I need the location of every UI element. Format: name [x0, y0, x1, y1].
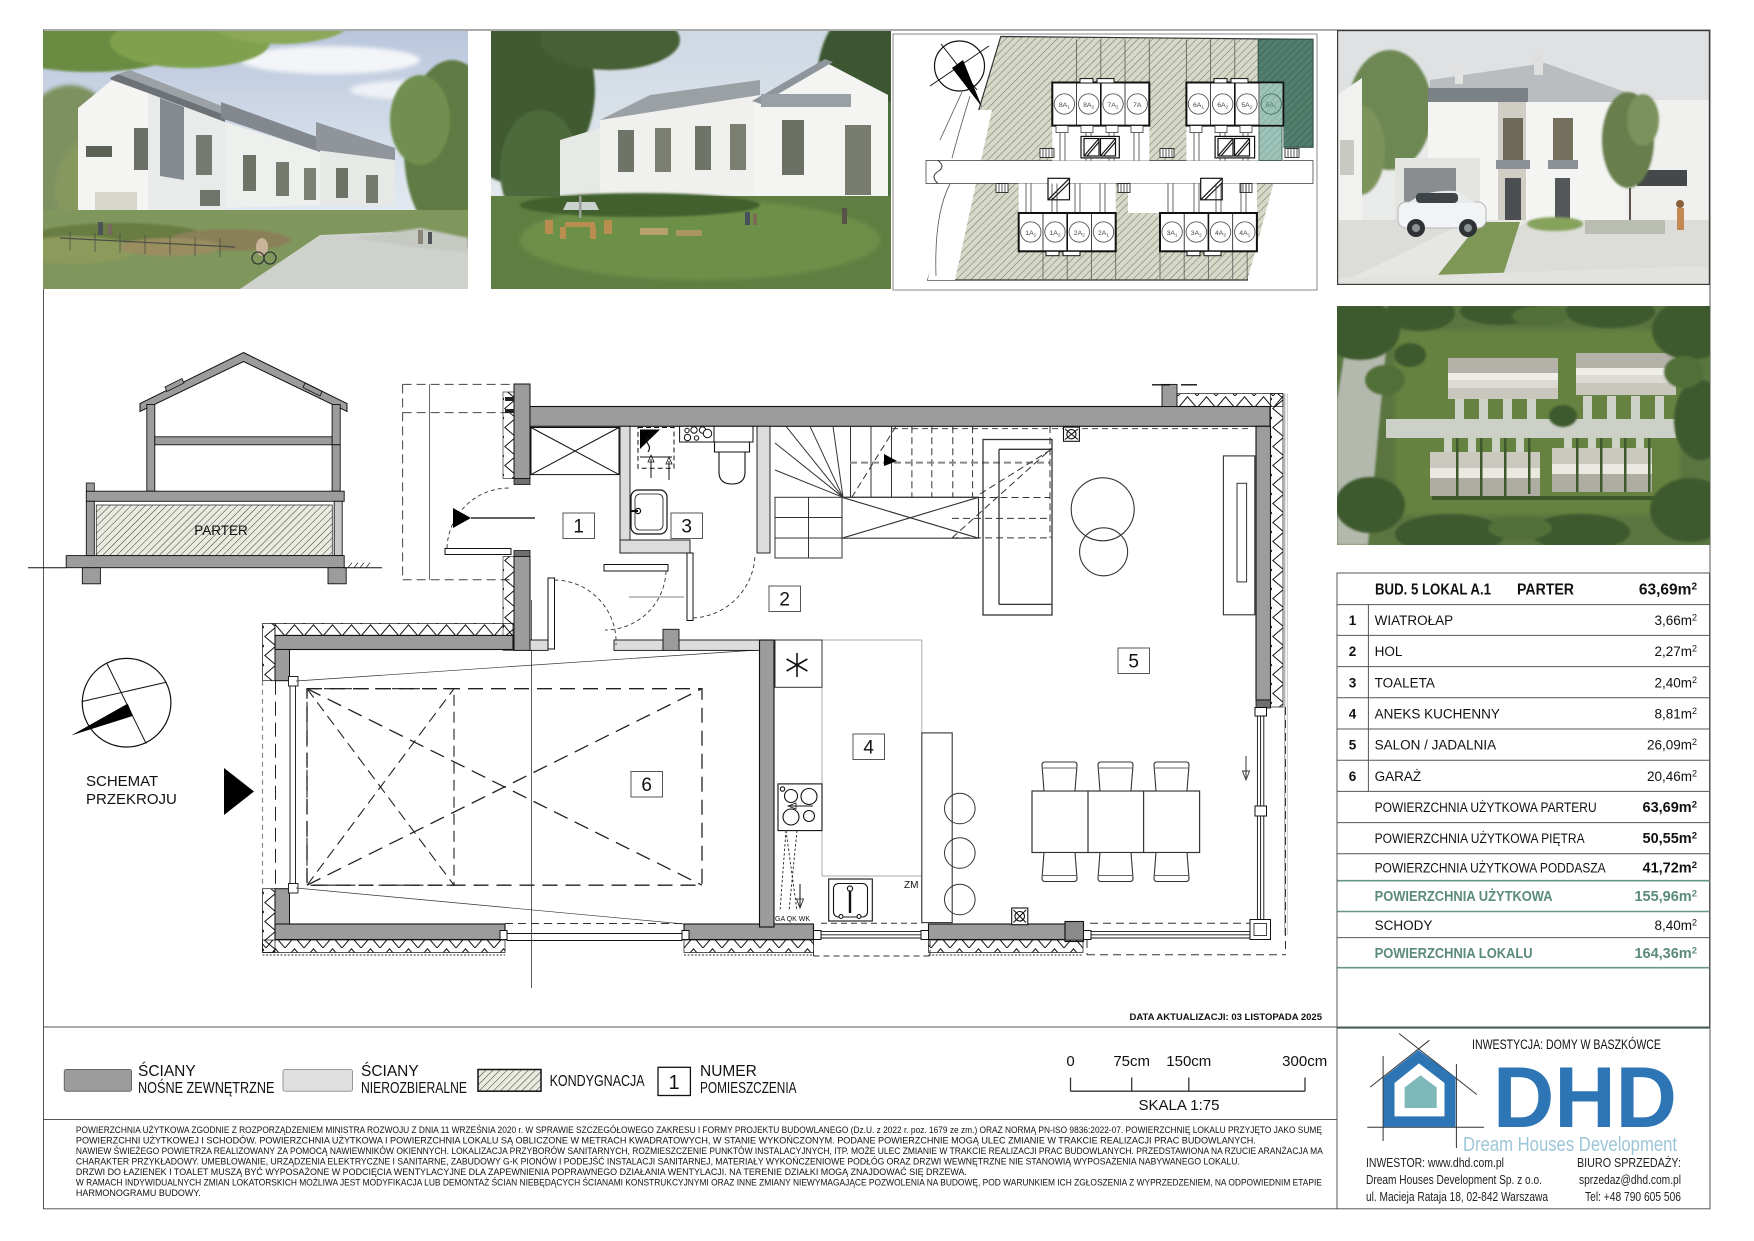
svg-text:W RAMACH INDYWIDUALNYCH ZMIAN: W RAMACH INDYWIDUALNYCH ZMIAN LOKATORSKI…: [76, 1177, 1322, 1188]
svg-text:4: 4: [863, 738, 874, 759]
svg-text:2,27m2: 2,27m2: [1654, 644, 1697, 660]
svg-text:DHD: DHD: [1493, 1050, 1677, 1146]
svg-text:75cm: 75cm: [1113, 1053, 1150, 1070]
svg-text:POWIERZCHNIA UŻYTKOWA PODDASZA: POWIERZCHNIA UŻYTKOWA PODDASZA: [1375, 861, 1606, 876]
svg-text:BUD. 5 LOKAL A.1: BUD. 5 LOKAL A.1: [1375, 582, 1491, 599]
svg-text:8,40m2: 8,40m2: [1654, 917, 1697, 933]
svg-text:HARMONOGRAMU BUDOWY.: HARMONOGRAMU BUDOWY.: [76, 1188, 201, 1198]
svg-text:NOŚNE ZEWNĘTRZNE: NOŚNE ZEWNĘTRZNE: [138, 1079, 275, 1097]
svg-text:300cm: 300cm: [1282, 1053, 1327, 1070]
svg-text:GARAŻ: GARAŻ: [1375, 769, 1422, 784]
svg-text:PARTER: PARTER: [194, 523, 248, 538]
svg-text:63,69m2: 63,69m2: [1643, 800, 1697, 817]
svg-text:50,55m2: 50,55m2: [1643, 831, 1697, 848]
svg-text:1: 1: [1349, 613, 1357, 628]
svg-text:SCHODY: SCHODY: [1375, 918, 1433, 933]
svg-text:POMIESZCZENIA: POMIESZCZENIA: [700, 1080, 797, 1097]
svg-text:63,69m2: 63,69m2: [1639, 582, 1698, 599]
svg-text:150cm: 150cm: [1166, 1053, 1211, 1070]
svg-text:SALON / JADALNIA: SALON / JADALNIA: [1375, 738, 1497, 753]
svg-text:20,46m2: 20,46m2: [1647, 768, 1697, 784]
svg-text:POWIERZCHNIA UŻYTKOWA ZGODNIE: POWIERZCHNIA UŻYTKOWA ZGODNIE Z ROZPORZĄ…: [76, 1124, 1322, 1135]
svg-text:6: 6: [1349, 769, 1357, 784]
svg-text:3: 3: [681, 517, 692, 538]
svg-text:SCHEMAT: SCHEMAT: [86, 773, 158, 790]
svg-text:8,81m2: 8,81m2: [1654, 706, 1697, 722]
svg-text:PARTER: PARTER: [1517, 582, 1574, 599]
svg-text:ANEKS KUCHENNY: ANEKS KUCHENNY: [1375, 707, 1500, 722]
svg-text:NAWIEW ŚWIEŻEGO POWIETRZA REAL: NAWIEW ŚWIEŻEGO POWIETRZA REALIZOWANY ZA…: [76, 1145, 1323, 1156]
svg-text:DATA AKTUALIZACJI: 03 LISTOPAD: DATA AKTUALIZACJI: 03 LISTOPADA 2025: [1130, 1012, 1323, 1023]
svg-text:ŚCIANY: ŚCIANY: [138, 1062, 196, 1080]
svg-text:POWIERZCHNIA UŻYTKOWA PARTERU: POWIERZCHNIA UŻYTKOWA PARTERU: [1375, 800, 1597, 815]
svg-text:Tel: +48 790 605 506: Tel: +48 790 605 506: [1585, 1189, 1681, 1204]
svg-text:2: 2: [779, 590, 790, 611]
svg-text:POWIERZCHNIA UŻYTKOWA: POWIERZCHNIA UŻYTKOWA: [1375, 888, 1553, 905]
svg-text:155,96m2: 155,96m2: [1634, 889, 1697, 906]
svg-text:PRZEKROJU: PRZEKROJU: [86, 791, 177, 808]
svg-text:sprzedaz@dhd.com.pl: sprzedaz@dhd.com.pl: [1579, 1172, 1681, 1187]
svg-text:ZM: ZM: [904, 880, 918, 891]
svg-text:NUMER: NUMER: [700, 1063, 757, 1080]
svg-text:KONDYGNACJA: KONDYGNACJA: [550, 1073, 646, 1090]
svg-text:POWIERZCHNIA UŻYTKOWA PIĘTRA: POWIERZCHNIA UŻYTKOWA PIĘTRA: [1375, 831, 1585, 846]
svg-text:SKALA 1:75: SKALA 1:75: [1139, 1097, 1220, 1114]
svg-text:6: 6: [641, 775, 652, 796]
svg-text:ul. Macieja Rataja 18, 02-842: ul. Macieja Rataja 18, 02-842 Warszawa: [1366, 1189, 1549, 1204]
svg-text:GA QK WK: GA QK WK: [775, 916, 810, 923]
svg-text:CHARAKTER PRZYKŁADOWY. UMEBLOW: CHARAKTER PRZYKŁADOWY. UMEBLOWANIE, URZĄ…: [76, 1156, 1240, 1167]
svg-text:3,66m2: 3,66m2: [1654, 613, 1697, 629]
svg-text:TOALETA: TOALETA: [1375, 675, 1435, 690]
svg-text:Dream Houses Development: Dream Houses Development: [1463, 1133, 1677, 1156]
svg-text:INWESTOR: www.dhd.com.pl: INWESTOR: www.dhd.com.pl: [1366, 1155, 1504, 1170]
svg-text:HOL: HOL: [1375, 644, 1403, 659]
svg-text:7A: 7A: [1133, 102, 1142, 109]
svg-text:26,09m2: 26,09m2: [1647, 737, 1697, 753]
svg-text:1: 1: [573, 517, 584, 538]
svg-text:ŚCIANY: ŚCIANY: [361, 1062, 419, 1080]
svg-text:0: 0: [1066, 1053, 1074, 1070]
svg-text:DRZWI DO ŁAZIENEK I TOALET MUS: DRZWI DO ŁAZIENEK I TOALET MUSZĄ BYĆ WYP…: [76, 1167, 967, 1177]
svg-text:41,72m2: 41,72m2: [1643, 860, 1697, 877]
svg-text:NIEROZBIERALNE: NIEROZBIERALNE: [361, 1080, 467, 1097]
svg-text:Dream Houses Development Sp. z: Dream Houses Development Sp. z o.o.: [1366, 1172, 1542, 1187]
svg-text:2: 2: [1349, 644, 1357, 659]
svg-text:164,36m2: 164,36m2: [1634, 945, 1697, 962]
svg-text:WIATROŁAP: WIATROŁAP: [1375, 613, 1454, 628]
svg-text:2,40m2: 2,40m2: [1654, 675, 1697, 691]
svg-text:POWIERZCHNIA LOKALU: POWIERZCHNIA LOKALU: [1375, 946, 1533, 962]
svg-text:5: 5: [1128, 652, 1139, 673]
svg-text:5: 5: [1349, 738, 1357, 753]
svg-text:POWIERZCHNI UŻYTKOWEJ I SCHODÓ: POWIERZCHNI UŻYTKOWEJ I SCHODÓW. POWIERZ…: [76, 1136, 1256, 1146]
svg-text:1: 1: [668, 1072, 679, 1094]
svg-text:3: 3: [1349, 675, 1357, 690]
svg-text:4: 4: [1349, 707, 1357, 722]
svg-text:BIURO SPRZEDAŻY:: BIURO SPRZEDAŻY:: [1577, 1155, 1681, 1170]
